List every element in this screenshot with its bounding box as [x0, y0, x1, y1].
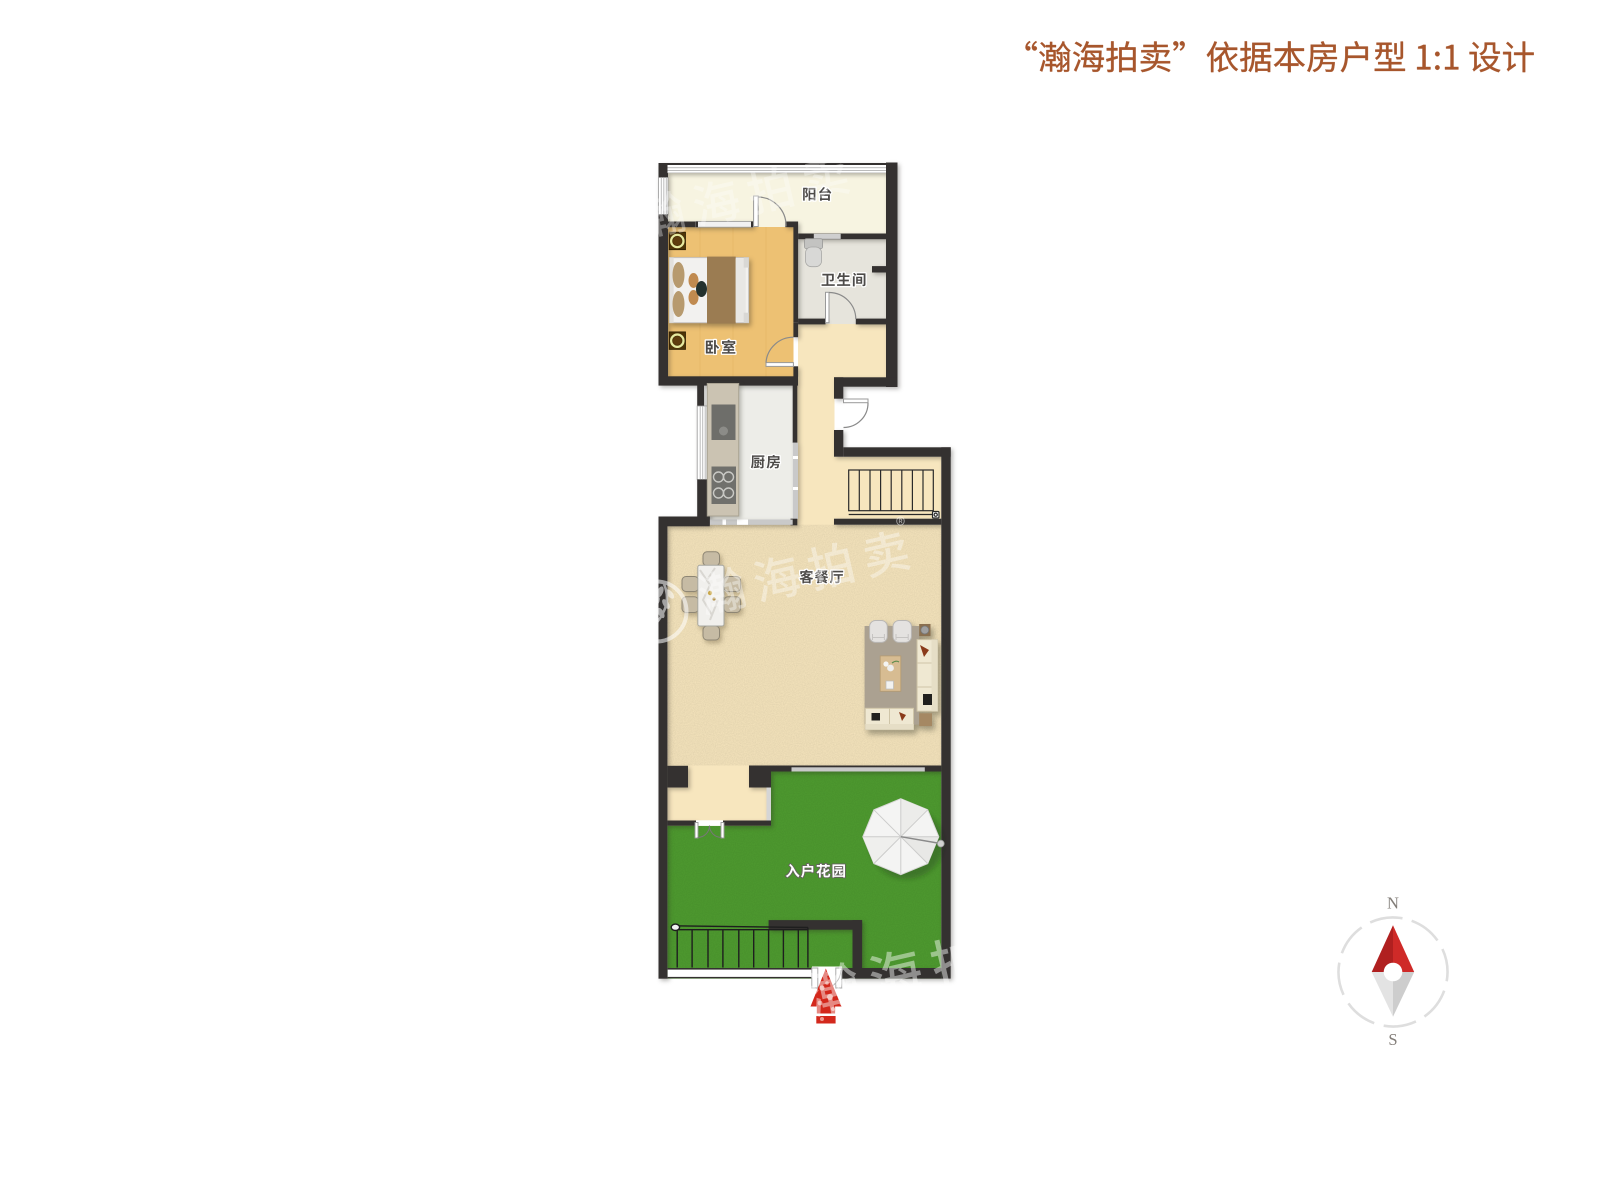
- svg-text:S: S: [1388, 1030, 1397, 1049]
- svg-text:N: N: [1387, 894, 1399, 913]
